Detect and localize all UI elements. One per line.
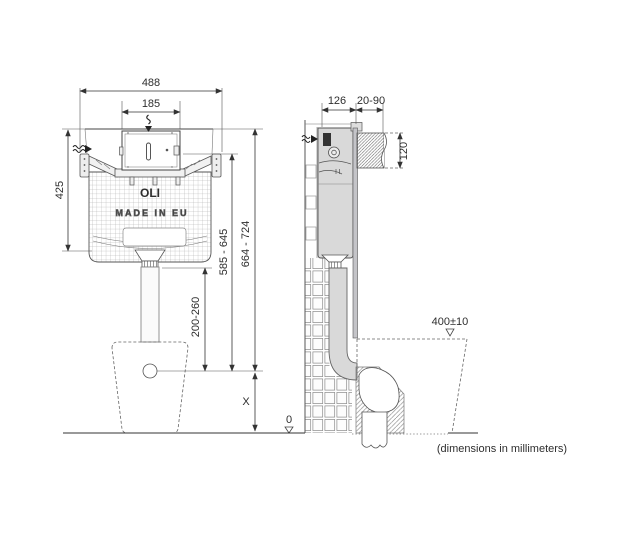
datum-triangle-icon [446,329,454,336]
side-view: 126 20-90 120 400±10 [302,95,478,448]
tank-lower-panel [123,228,186,246]
frame-side-right [212,129,213,154]
svg-text:488: 488 [142,77,160,89]
wall-tiles-lower [329,376,352,433]
access-panel [120,131,181,170]
svg-text:664 - 724: 664 - 724 [240,221,252,267]
svg-text:400±10: 400±10 [432,316,469,328]
panel-width-dim: 185 [122,98,180,129]
opening-height-dim: 120 [398,133,410,168]
cistern-dimension-drawing: OLI MADE IN EU [0,0,618,535]
wall-sparse-tiles [306,165,316,240]
svg-text:20-90: 20-90 [357,95,385,107]
technical-drawing-page: OLI MADE IN EU [0,0,618,535]
made-in-eu-label: MADE IN EU [115,208,188,218]
toilet-bowl-outline-front [112,342,188,433]
svg-text:585 - 645: 585 - 645 [218,229,230,275]
svg-text:120: 120 [398,142,410,160]
svg-text:126: 126 [328,95,346,107]
finished-wall-block [357,133,384,168]
bowl-height-dim: 400±10 [432,316,469,336]
water-inlet-arrow-side-icon [302,135,318,143]
mounting-bracket-left [80,154,89,177]
svg-text:0: 0 [286,414,292,426]
svg-text:185: 185 [142,98,160,110]
water-inlet-arrow-left-icon [73,145,92,153]
front-view: OLI MADE IN EU [54,77,305,433]
wall-tiles-upper [306,258,330,433]
svg-text:X: X [242,396,250,408]
oli-logo: OLI [140,186,160,200]
outlet-circle [143,364,157,378]
flush-pipe-front [141,267,159,342]
flush-slot [147,143,151,160]
drain-pipe-below-floor [362,412,387,448]
floor-datum: 0 [285,414,293,433]
top-height-range-dim: 664 - 724 [240,129,255,371]
mounting-bracket-right [212,154,221,177]
datum-triangle-icon [285,427,293,433]
outlet-height-dim: X [242,373,255,431]
svg-text:200-260: 200-260 [190,297,202,337]
svg-text:425: 425 [54,181,66,199]
units-note: (dimensions in millimeters) [437,443,567,455]
